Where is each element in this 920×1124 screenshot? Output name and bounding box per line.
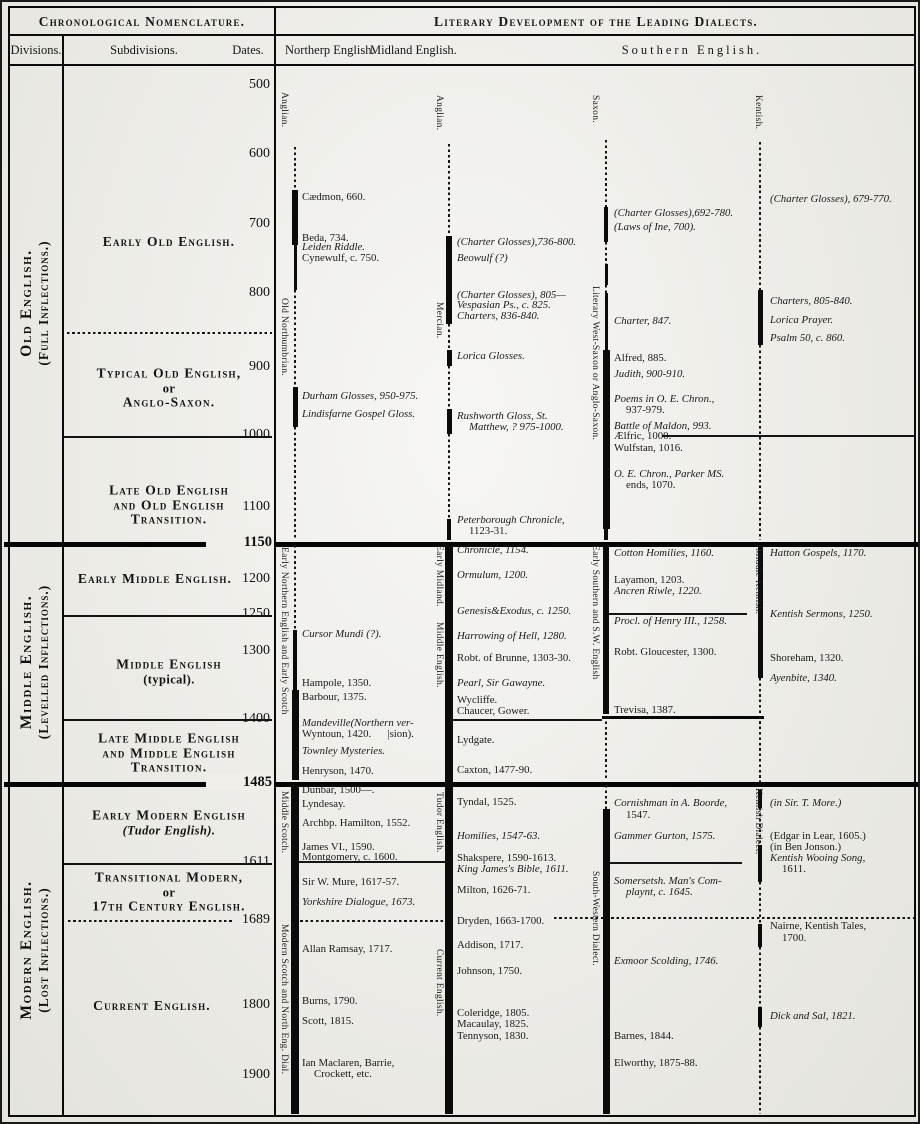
- midland-entry: Robt. of Brunne, 1303-30.: [457, 653, 571, 664]
- right-section-title: Literary Development of the Leading Dial…: [276, 14, 916, 30]
- dialect-branch-label: Kentish.: [753, 95, 763, 129]
- kentish-timeline-segment: [759, 678, 761, 785]
- dialect-branch-label: Old Northumbrian.: [279, 298, 289, 376]
- header-row-divider: [8, 34, 916, 36]
- date-label: 1300: [206, 643, 270, 659]
- subdivision-line: Transitional Modern,: [92, 870, 245, 885]
- northern-entry: Montgomery, c. 1600.: [302, 852, 398, 863]
- midland-timeline-segment: [448, 366, 450, 409]
- date-label: 1689: [206, 912, 270, 928]
- midland-entry: Chaucer, Gower.: [457, 706, 529, 717]
- midland-entry: Pearl, Sir Gawayne.: [457, 678, 545, 689]
- midland-entry: Vespasian Ps., c. 825.: [457, 300, 551, 311]
- dialect-branch-label: Current English.: [434, 949, 444, 1017]
- northern-entry: Lyndesay.: [302, 799, 345, 810]
- date-label: 800: [206, 285, 270, 301]
- dialect-branch-label: Anglian.: [279, 92, 289, 127]
- subdivision-label: Current English.: [93, 999, 211, 1014]
- southern-entry: Elworthy, 1875-88.: [614, 1058, 698, 1069]
- midland-entry: Charters, 836-840.: [457, 311, 539, 322]
- northern-entry: Yorkshire Dialogue, 1673.: [302, 897, 415, 908]
- section-divider-line: [274, 6, 276, 1115]
- midland-entry: Ormulum, 1200.: [457, 570, 528, 581]
- northern-entry: Hampole, 1350.: [302, 678, 371, 689]
- midland-entry: Dryden, 1663-1700.: [457, 916, 544, 927]
- date-rule: [67, 332, 272, 334]
- kentish-entry: (Edgar in Lear, 1605.): [770, 831, 866, 842]
- subdivision-line: (Tudor English).: [92, 823, 246, 838]
- kentish-entry: Dick and Sal, 1821.: [770, 1011, 855, 1022]
- kentish-entry: Psalm 50, c. 860.: [770, 333, 845, 344]
- dialect-branch-label: Tudor English.: [434, 792, 444, 853]
- midland-timeline-segment: [446, 236, 452, 324]
- kentish-entry: 1611.: [782, 864, 806, 875]
- header-bottom-divider: [8, 64, 916, 66]
- subdivision-line: Late Old English: [109, 483, 229, 498]
- southern-entry: Procl. of Henry III., 1258.: [614, 616, 727, 627]
- southern-entry: Poems in O. E. Chron.,: [614, 394, 714, 405]
- dialect-branch-label: Anglian.: [434, 95, 444, 130]
- dialect-branch-label: Early Northern English and Early Scotch: [279, 547, 289, 715]
- southern-entry: 1547.: [626, 810, 650, 821]
- subdivision-line: or: [97, 381, 242, 396]
- kentish-entry: Shoreham, 1320.: [770, 653, 843, 664]
- kentish-entry: Hatton Gospels, 1170.: [770, 548, 866, 559]
- date-label: 500: [206, 77, 270, 93]
- midland-entry: Caxton, 1477-90.: [457, 765, 532, 776]
- kentish-timeline-segment: [758, 1007, 762, 1027]
- southern-entry: Alfred, 885.: [614, 353, 666, 364]
- kentish-entry: (in Ben Jonson.): [770, 842, 841, 853]
- date-label: 1100: [206, 499, 270, 515]
- southern-timeline-segment: [605, 716, 607, 780]
- date-rule: [4, 782, 918, 787]
- southern-entry: (Charter Glosses),692-780.: [614, 208, 733, 219]
- date-rule: [295, 920, 446, 922]
- division-title: Middle English.: [18, 585, 35, 740]
- southern-timeline-segment: [603, 545, 609, 714]
- midland-entry: Tennyson, 1830.: [457, 1031, 529, 1042]
- dialect-branch-label: Early Midland.: [434, 545, 444, 607]
- midland-entry: Genesis&Exodus, c. 1250.: [457, 606, 571, 617]
- column-header-midland-english: Midland English.: [370, 43, 457, 58]
- midland-entry: Milton, 1626-71.: [457, 885, 530, 896]
- midland-entry: Chronicle, 1154.: [457, 545, 529, 556]
- midland-timeline-segment: [448, 434, 450, 519]
- dialect-branch-label: South-Western Dialect.: [590, 871, 600, 966]
- division-label: Old English.(Full Inflections.): [18, 240, 52, 365]
- kentish-timeline-segment: [759, 142, 761, 290]
- southern-timeline-segment: [605, 785, 607, 809]
- dialect-branch-label: Middle Kentish.: [753, 548, 763, 614]
- midland-entry: Macaulay, 1825.: [457, 1019, 529, 1030]
- midland-entry: Wycliffe.: [457, 695, 497, 706]
- date-rule: [602, 716, 764, 719]
- date-label: 700: [206, 216, 270, 232]
- date-label: 1400: [206, 711, 270, 727]
- dialect-branch-label: Middle English.: [434, 622, 444, 688]
- date-label: 1000: [206, 427, 270, 443]
- midland-entry: Matthew, ? 975-1000.: [469, 422, 564, 433]
- chronological-dialect-table: Chronological Nomenclature. Literary Dev…: [0, 0, 920, 1124]
- subdivision-line: (typical).: [116, 672, 221, 687]
- southern-entry: Cotton Homilies, 1160.: [614, 548, 714, 559]
- division-label: Middle English.(Levelled Inflections.): [18, 585, 52, 740]
- midland-timeline-segment: [448, 144, 450, 236]
- midland-timeline-segment: [447, 350, 452, 366]
- northern-timeline-segment: [293, 387, 298, 427]
- kentish-entry: Nairne, Kentish Tales,: [770, 921, 866, 932]
- division-label: Modern English.(Lost Inflections.): [18, 880, 52, 1019]
- northern-timeline-segment: [293, 630, 297, 690]
- northern-entry: Durham Glosses, 950-975.: [302, 391, 418, 402]
- midland-entry: Addison, 1717.: [457, 940, 523, 951]
- date-rule: [606, 862, 742, 864]
- midland-entry: Lydgate.: [457, 735, 494, 746]
- southern-timeline-segment: [605, 242, 607, 264]
- northern-entry: Ian Maclaren, Barrie,: [302, 1058, 394, 1069]
- northern-timeline-segment: [294, 147, 296, 190]
- northern-entry: Burns, 1790.: [302, 996, 358, 1007]
- subdivision-line: Transition.: [98, 760, 240, 775]
- midland-entry: Harrowing of Hell, 1280.: [457, 631, 567, 642]
- midland-entry: Tyndal, 1525.: [457, 797, 517, 808]
- division-subtitle: (Levelled Inflections.): [35, 585, 52, 740]
- southern-entry: 937-979.: [626, 405, 665, 416]
- southern-timeline-segment: [604, 529, 608, 540]
- subdivision-line: Late Middle English: [98, 731, 240, 746]
- midland-entry: King James's Bible, 1611.: [457, 864, 569, 875]
- subdivision-label: Late Middle Englishand Middle EnglishTra…: [98, 731, 240, 775]
- southern-timeline-segment: [605, 264, 608, 285]
- northern-timeline-segment: [291, 785, 299, 1114]
- dialect-branch-label: Saxon.: [590, 95, 600, 123]
- division-subtitle: (Lost Inflections.): [35, 880, 52, 1019]
- subdivision-line: Anglo-Saxon.: [97, 395, 242, 410]
- northern-entry: Cædmon, 660.: [302, 192, 365, 203]
- northern-entry: Cynewulf, c. 750.: [302, 253, 379, 264]
- southern-timeline-segment: [605, 293, 608, 350]
- subdivision-line: Early Modern English: [92, 809, 246, 824]
- kentish-timeline-segment: [759, 345, 761, 540]
- southern-timeline-segment: [604, 207, 608, 242]
- southern-timeline-segment: [603, 809, 610, 1114]
- midland-entry: Lorica Glosses.: [457, 351, 525, 362]
- northern-timeline-segment: [292, 190, 298, 245]
- kentish-entry: (Charter Glosses), 679-770.: [770, 194, 892, 205]
- kentish-entry: Ayenbite, 1340.: [770, 673, 837, 684]
- midland-timeline-segment: [445, 545, 453, 1114]
- northern-entry: Scott, 1815.: [302, 1016, 354, 1027]
- southern-entry: Robt. Gloucester, 1300.: [614, 647, 716, 658]
- northern-entry: Cursor Mundi (?).: [302, 629, 381, 640]
- subdivision-line: Current English.: [93, 999, 211, 1014]
- midland-timeline-segment: [447, 409, 452, 434]
- kentish-entry: 1700.: [782, 933, 806, 944]
- northern-timeline-segment: [294, 545, 296, 630]
- subdivision-line: or: [92, 885, 245, 900]
- midland-entry: (Charter Glosses),736-800.: [457, 237, 576, 248]
- midland-entry: Peterborough Chronicle,: [457, 515, 565, 526]
- southern-entry: Gammer Gurton, 1575.: [614, 831, 715, 842]
- northern-entry: Townley Mysteries.: [302, 746, 385, 757]
- southern-entry: Charter, 847.: [614, 316, 671, 327]
- dialect-branch-label: Literary West-Saxon or Anglo-Saxon.: [590, 286, 600, 440]
- date-label: 1611: [206, 854, 270, 870]
- southern-timeline-segment: [603, 350, 610, 529]
- date-label: 1250: [206, 606, 270, 622]
- column-header-dates: Dates.: [222, 43, 274, 58]
- southern-entry: Trevisa, 1387.: [614, 705, 676, 716]
- dialect-branch-label: Middle Scotch.: [279, 791, 289, 853]
- date-label: 1150: [206, 534, 274, 550]
- date-label: 600: [206, 146, 270, 162]
- date-label: 1900: [206, 1067, 270, 1083]
- subdivision-label: Middle English(typical).: [116, 658, 221, 687]
- date-rule: [452, 719, 602, 721]
- southern-timeline-segment: [605, 140, 607, 207]
- northern-entry: Leiden Riddle.: [302, 242, 365, 253]
- northern-entry: Barbour, 1375.: [302, 692, 367, 703]
- subdivision-label: Transitional Modern,or17th Century Engli…: [92, 870, 245, 914]
- left-section-title: Chronological Nomenclature.: [10, 14, 274, 30]
- date-label: 900: [206, 359, 270, 375]
- northern-timeline-segment: [294, 290, 296, 387]
- northern-entry: Allan Ramsay, 1717.: [302, 944, 392, 955]
- subdivision-line: Early Old English.: [103, 235, 235, 250]
- southern-entry: Exmoor Scolding, 1746.: [614, 956, 718, 967]
- northern-entry: Henryson, 1470.: [302, 766, 374, 777]
- kentish-timeline-segment: [758, 924, 762, 947]
- date-label: 1485: [206, 774, 274, 790]
- southern-entry: Somersetsh. Man's Com-: [614, 876, 722, 887]
- date-rule: [662, 435, 916, 437]
- division-subtitle: (Full Inflections.): [35, 240, 52, 365]
- division-title: Modern English.: [18, 880, 35, 1019]
- southern-entry: Barnes, 1844.: [614, 1031, 674, 1042]
- column-header-subdivisions: Subdivisions.: [68, 43, 220, 58]
- midland-entry: Shakspere, 1590-1613.: [457, 853, 556, 864]
- kentish-entry: Charters, 805-840.: [770, 296, 852, 307]
- kentish-timeline-segment: [759, 1027, 761, 1114]
- subdivision-label: Early Modern English(Tudor English).: [92, 809, 246, 838]
- midland-timeline-segment: [448, 324, 450, 350]
- southern-entry: Ælfric, 1000.: [614, 431, 671, 442]
- southern-entry: Wulfstan, 1016.: [614, 443, 683, 454]
- southern-entry: O. E. Chron., Parker MS.: [614, 469, 724, 480]
- southern-timeline-segment: [605, 285, 607, 293]
- subdivision-label: Early Old English.: [103, 235, 235, 250]
- midland-entry: Beowulf (?): [457, 253, 508, 264]
- dialect-branch-label: Kentish Dialect.: [753, 788, 763, 855]
- northern-timeline-segment: [294, 245, 297, 290]
- northern-entry: Lindisfarne Gospel Gloss.: [302, 409, 415, 420]
- kentish-entry: Kentish Wooing Song,: [770, 853, 865, 864]
- kentish-entry: Kentish Sermons, 1250.: [770, 609, 873, 620]
- midland-timeline-segment: [447, 519, 451, 540]
- midland-entry: 1123-31.: [469, 526, 507, 537]
- kentish-timeline-segment: [759, 882, 761, 924]
- midland-entry: Homilies, 1547-63.: [457, 831, 540, 842]
- midland-entry: Coleridge, 1805.: [457, 1008, 529, 1019]
- dialect-branch-label: Modern Scotch and North Eng. Dial.: [279, 924, 289, 1074]
- division-title: Old English.: [18, 240, 35, 365]
- column-header-northern-english: Northerp English.: [285, 43, 375, 58]
- northern-entry: Mandeville(Northern ver-: [302, 718, 414, 729]
- southern-entry: playnt, c. 1645.: [626, 887, 693, 898]
- column-header-southern-english: Southern English.: [562, 43, 822, 58]
- southern-entry: (Laws of Ine, 700).: [614, 222, 696, 233]
- date-label: 1200: [206, 571, 270, 587]
- divisions-column-line: [62, 34, 64, 1115]
- southern-entry: ends, 1070.: [626, 480, 675, 491]
- northern-entry: Crockett, etc.: [314, 1069, 372, 1080]
- northern-timeline-segment: [292, 690, 299, 780]
- southern-entry: Judith, 900-910.: [614, 369, 685, 380]
- southern-entry: Ancren Riwle, 1220.: [614, 586, 702, 597]
- kentish-timeline-segment: [758, 290, 763, 345]
- subdivision-line: Middle English: [116, 658, 221, 673]
- kentish-entry: Lorica Prayer.: [770, 315, 833, 326]
- northern-entry: Archbp. Hamilton, 1552.: [302, 818, 410, 829]
- dialect-branch-label: Early Southern and S.W. English: [590, 545, 600, 680]
- subdivision-line: and Middle English: [98, 746, 240, 761]
- northern-timeline-segment: [294, 427, 296, 540]
- northern-entry: Wyntoun, 1420. |sion).: [302, 729, 414, 740]
- midland-entry: Johnson, 1750.: [457, 966, 522, 977]
- northern-entry: Dunbar, 1500—.: [302, 785, 374, 796]
- column-header-divisions: Divisions.: [10, 43, 62, 58]
- kentish-entry: (in Sir. T. More.): [770, 798, 841, 809]
- southern-entry: Cornishman in A. Boorde,: [614, 798, 727, 809]
- dialect-branch-label: Mercian.: [434, 302, 444, 338]
- southern-entry: Layamon, 1203.: [614, 575, 684, 586]
- midland-entry: Rushworth Gloss, St.: [457, 411, 548, 422]
- kentish-timeline-segment: [759, 947, 761, 1007]
- date-label: 1800: [206, 997, 270, 1013]
- northern-entry: Sir W. Mure, 1617-57.: [302, 877, 399, 888]
